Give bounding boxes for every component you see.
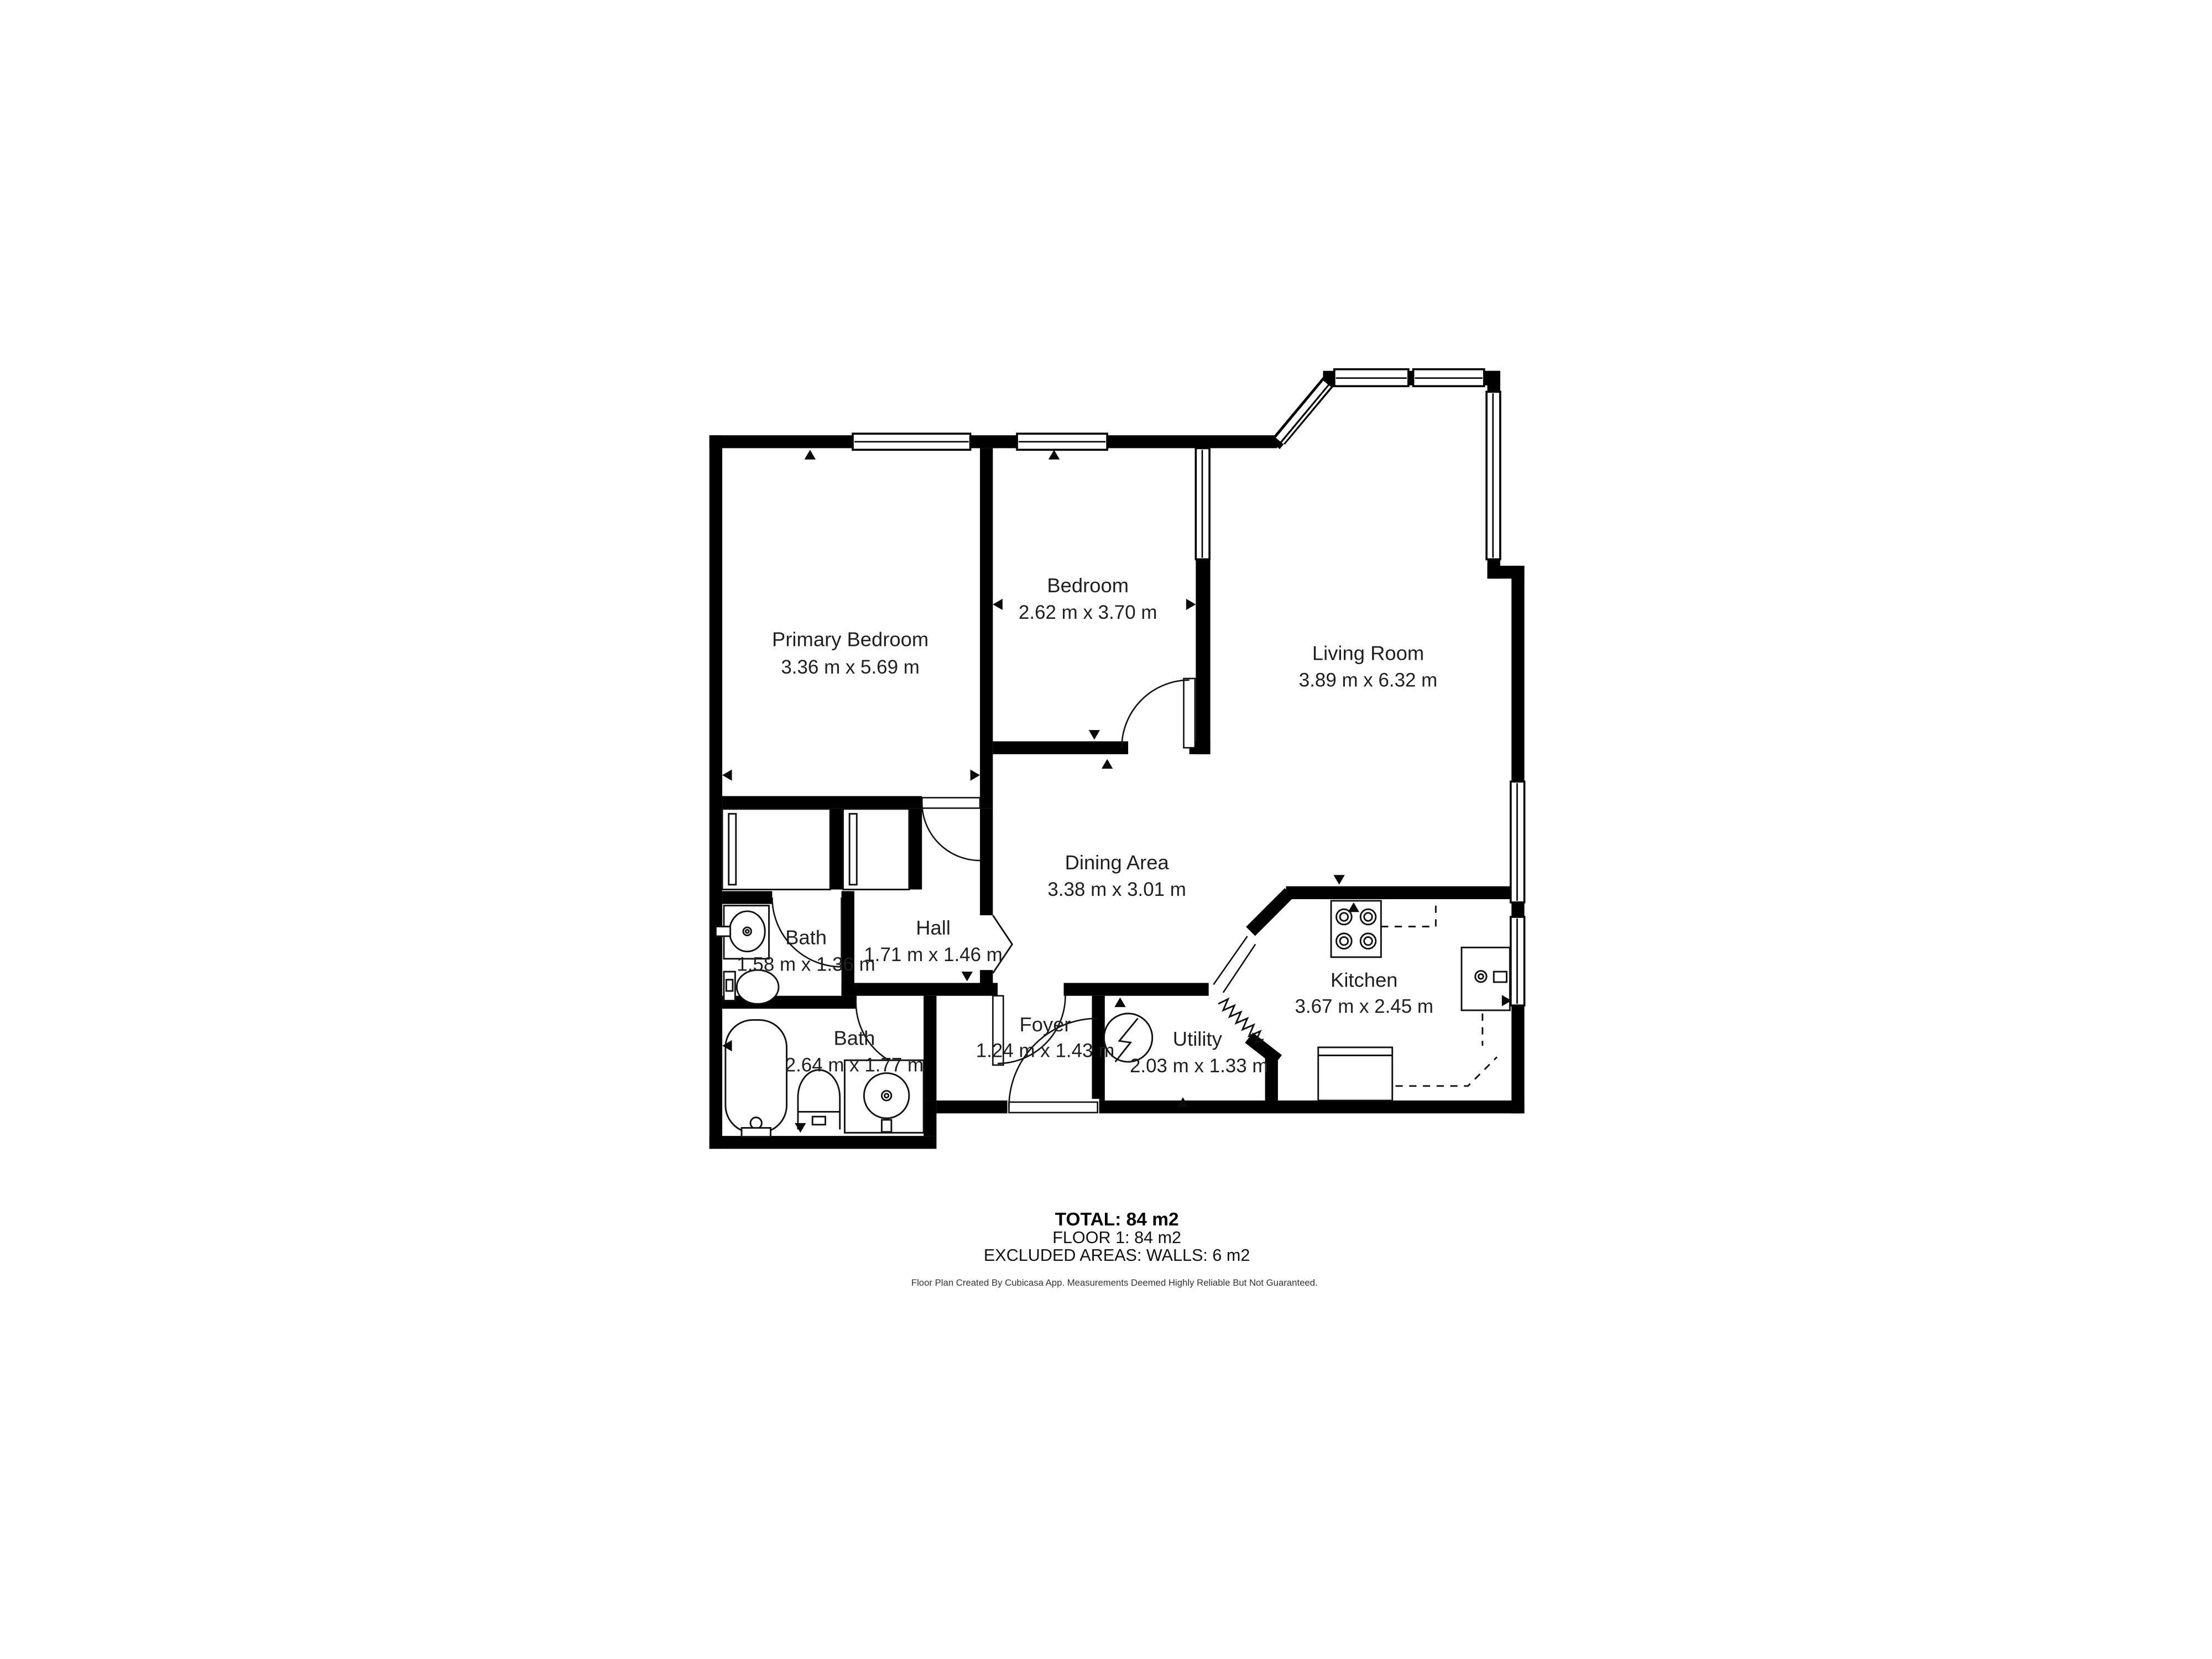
summary-floor: FLOOR 1: 84 m2 bbox=[1052, 1228, 1181, 1247]
entry-door-leaf bbox=[1009, 1102, 1098, 1113]
arrow-icon bbox=[962, 972, 973, 981]
walls-layer bbox=[709, 371, 1525, 1149]
arrow-icon bbox=[971, 770, 980, 781]
room-label-utility: Utility bbox=[1173, 1027, 1223, 1050]
counter-dashed bbox=[1396, 1057, 1497, 1086]
door-leaf bbox=[1184, 679, 1195, 748]
arrow-icon bbox=[1114, 998, 1125, 1007]
room-label-foyer: Foyer bbox=[1020, 1013, 1071, 1036]
room-dims-primary-bedroom: 3.36 m x 5.69 m bbox=[781, 656, 920, 678]
floor-plan-canvas: Primary Bedroom 3.36 m x 5.69 m Bedroom … bbox=[484, 0, 1728, 1659]
toilet-icon bbox=[798, 1070, 840, 1130]
wall bbox=[1064, 983, 1209, 995]
wall bbox=[980, 448, 993, 808]
counter-dashed bbox=[1381, 901, 1436, 927]
room-dims-bath-1: 1.58 m x 1.36 m bbox=[737, 954, 875, 975]
summary-block: TOTAL: 84 m2 FLOOR 1: 84 m2 EXCLUDED ARE… bbox=[911, 1209, 1318, 1288]
room-label-dining-area: Dining Area bbox=[1065, 851, 1170, 874]
summary-total: TOTAL: 84 m2 bbox=[1055, 1209, 1179, 1230]
door-leaf bbox=[922, 797, 980, 808]
arrow-icon bbox=[1048, 450, 1060, 459]
arrow-icon bbox=[1102, 759, 1113, 769]
room-label-primary-bedroom: Primary Bedroom bbox=[772, 628, 928, 651]
wall bbox=[924, 1100, 936, 1136]
wall bbox=[909, 809, 922, 890]
room-dims-bedroom: 2.62 m x 3.70 m bbox=[1019, 602, 1157, 623]
arrow-icon bbox=[1333, 875, 1344, 884]
room-dims-foyer: 1.24 m x 1.43 m bbox=[976, 1040, 1115, 1061]
wall bbox=[842, 891, 854, 995]
wall-angled bbox=[1250, 893, 1289, 931]
faucet-icon bbox=[1494, 972, 1506, 982]
room-dims-bath-2: 2.64 m x 1.77 m bbox=[785, 1055, 924, 1076]
arrow-icon bbox=[1089, 730, 1100, 739]
wall bbox=[709, 435, 1277, 448]
sink-icon bbox=[729, 911, 765, 952]
wall bbox=[993, 742, 1128, 754]
bathtub-icon bbox=[726, 1020, 787, 1133]
room-dims-kitchen: 3.67 m x 2.45 m bbox=[1295, 995, 1433, 1017]
wall bbox=[722, 891, 772, 904]
room-label-hall: Hall bbox=[916, 916, 951, 939]
wall bbox=[924, 996, 936, 1100]
sliding-door-icon bbox=[849, 814, 857, 885]
sliding-door-icon bbox=[729, 814, 736, 885]
wall bbox=[709, 435, 722, 1149]
summary-excluded: EXCLUDED AREAS: WALLS: 6 m2 bbox=[984, 1246, 1250, 1265]
wall bbox=[722, 796, 922, 809]
room-label-kitchen: Kitchen bbox=[1331, 969, 1397, 992]
room-dims-dining-area: 3.38 m x 3.01 m bbox=[1047, 879, 1186, 900]
arrow-icon bbox=[795, 1123, 806, 1133]
closet bbox=[722, 809, 830, 890]
closets bbox=[722, 809, 909, 890]
tub-faucet-icon bbox=[750, 1118, 761, 1129]
room-dims-living-room: 3.89 m x 6.32 m bbox=[1299, 670, 1437, 691]
wall bbox=[1286, 886, 1511, 899]
door-arc bbox=[922, 802, 980, 860]
arrow-icon bbox=[722, 770, 732, 781]
arrow-icon bbox=[1186, 599, 1196, 610]
faucet-icon bbox=[716, 926, 730, 936]
footer-disclaimer: Floor Plan Created By Cubicasa App. Meas… bbox=[911, 1277, 1318, 1288]
room-label-living-room: Living Room bbox=[1312, 641, 1424, 664]
faucet-icon bbox=[881, 1120, 891, 1132]
arrow-icon bbox=[805, 450, 816, 459]
wall bbox=[980, 809, 993, 915]
room-dims-hall: 1.71 m x 1.46 m bbox=[864, 944, 1003, 966]
room-dims-utility: 2.03 m x 1.33 m bbox=[1130, 1055, 1269, 1077]
wall bbox=[842, 983, 998, 995]
floor-plan-page: Primary Bedroom 3.36 m x 5.69 m Bedroom … bbox=[484, 0, 1728, 1659]
wall bbox=[830, 809, 843, 890]
wall bbox=[709, 1136, 937, 1149]
room-label-bath-2: Bath bbox=[833, 1027, 875, 1050]
arrow-icon bbox=[993, 599, 1002, 610]
door-arc bbox=[1121, 680, 1189, 748]
wall bbox=[1196, 556, 1210, 754]
room-label-bedroom: Bedroom bbox=[1047, 574, 1129, 597]
room-label-bath-1: Bath bbox=[785, 926, 827, 949]
